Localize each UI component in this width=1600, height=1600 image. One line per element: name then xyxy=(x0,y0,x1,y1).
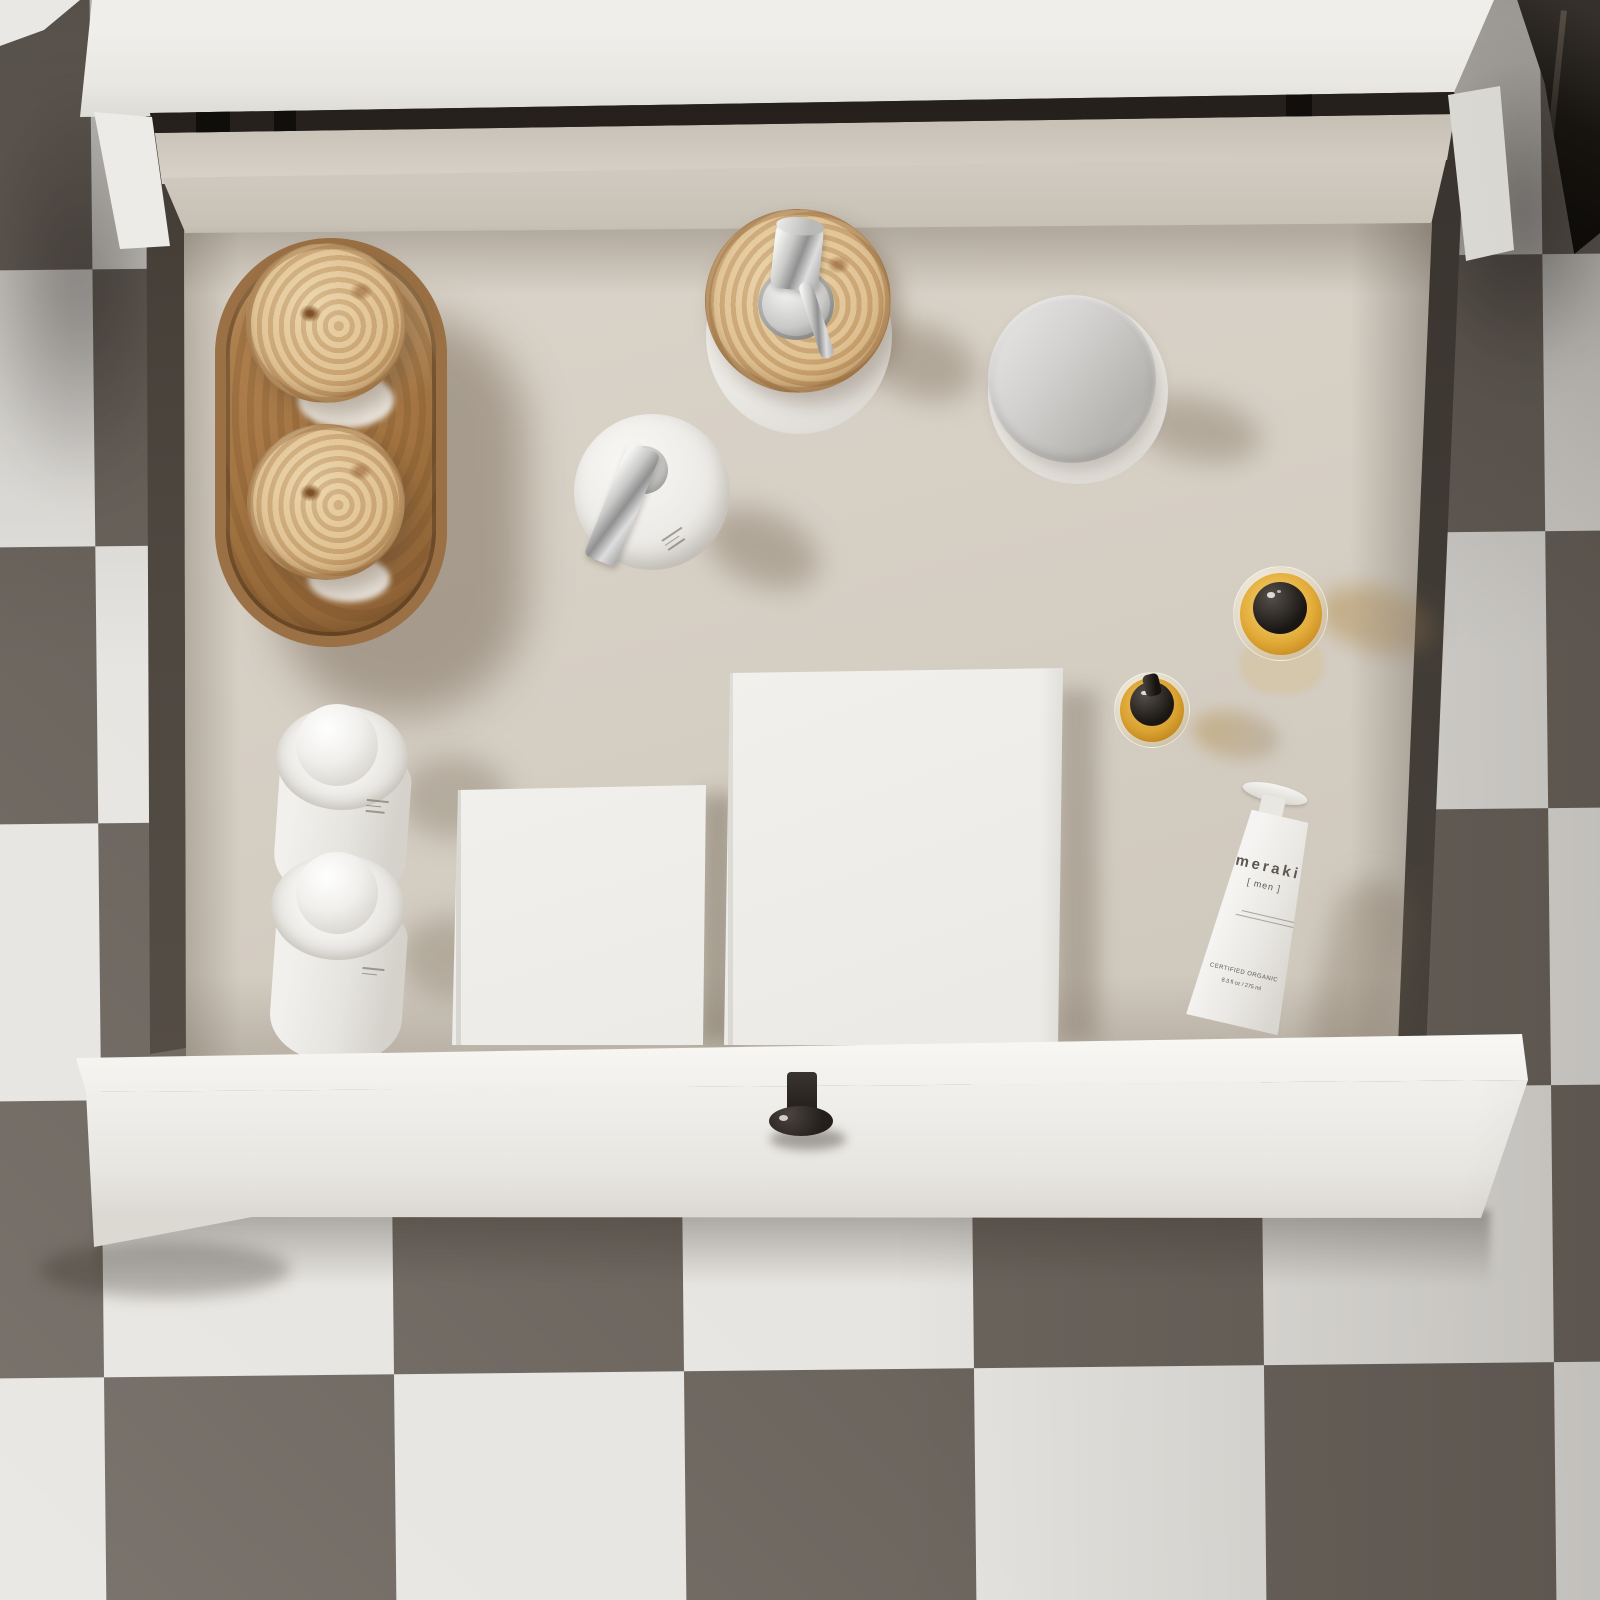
label-fine-print xyxy=(361,967,384,980)
drawer-knob[interactable] xyxy=(769,1106,833,1136)
label-line xyxy=(1236,914,1324,935)
label-line xyxy=(1242,910,1320,929)
drawer-front-floor-shadow xyxy=(95,1210,1490,1285)
chrome-pump-head xyxy=(770,222,825,293)
label-fine-print xyxy=(1230,908,1330,940)
label-line xyxy=(366,810,385,813)
burl-lid-canister-1 xyxy=(245,243,407,403)
burl-lid-canister-2 xyxy=(247,424,405,580)
label-fine-print xyxy=(365,799,389,818)
black-sphere-cap xyxy=(1253,582,1307,634)
bottle-1-ball-cap xyxy=(296,704,378,786)
drawer-front-tip-shadow xyxy=(40,1242,290,1297)
label-line xyxy=(366,804,381,807)
silver-lid-jar-lid xyxy=(988,295,1156,463)
label-line xyxy=(362,972,377,975)
bathroom-drawer-scene: meraki [ men ] CERTIFIED ORGANIC 8.3 fl … xyxy=(0,0,1600,1600)
bottle-2-ball-cap xyxy=(296,852,378,934)
